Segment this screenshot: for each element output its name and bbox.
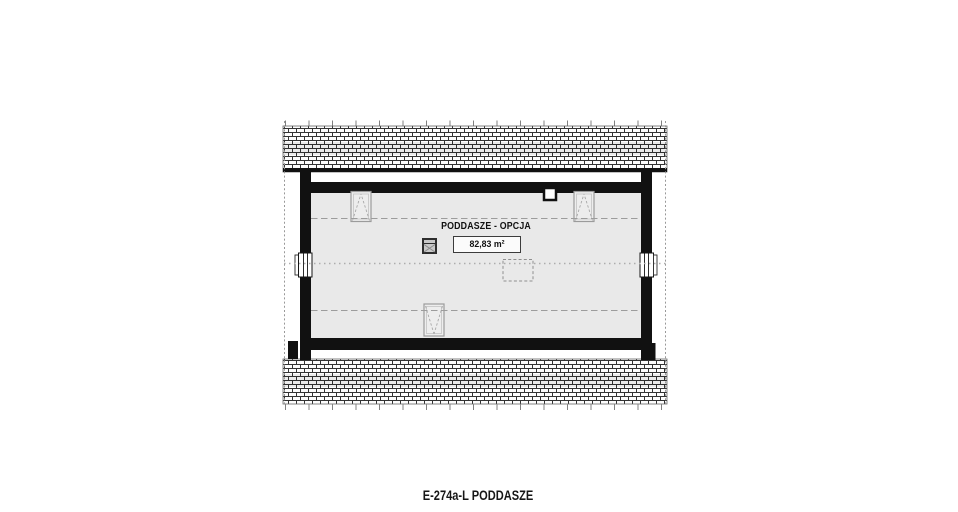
eaves-tick-marks-bottom: [283, 405, 667, 411]
roof-band-top: [283, 121, 667, 173]
flue-stack-icon: [423, 239, 436, 253]
room-area-box: 82,83 m²: [453, 236, 521, 253]
wall-bottom: [300, 338, 652, 350]
floor-plan-page: PODDASZE - OPCJA 82,83 m² E-274a-L PODDA…: [0, 0, 958, 512]
gable-window-left-icon: [295, 253, 312, 277]
room-name-label: PODDASZE - OPCJA: [398, 221, 574, 232]
roof-shade-stripe: [283, 374, 667, 387]
roof-edge-line-top: [283, 168, 667, 172]
roof-window-top-right-icon: [574, 192, 594, 222]
drawing-caption: E-274a-L PODDASZE: [355, 488, 601, 503]
roof-shade-stripe: [283, 142, 667, 155]
roof-window-top-left-icon: [351, 192, 371, 222]
floor-plan-drawing: [0, 0, 958, 512]
gable-window-right-icon: [640, 253, 657, 277]
chimney-icon: [544, 188, 556, 200]
roof-band-bottom: [283, 359, 667, 410]
wall-footing-right: [652, 343, 656, 360]
wall-footing-left: [288, 341, 298, 359]
eaves-tick-marks-top: [283, 121, 667, 127]
roof-window-bottom-icon: [424, 304, 444, 336]
room-area-value: 82,83 m²: [470, 237, 505, 252]
